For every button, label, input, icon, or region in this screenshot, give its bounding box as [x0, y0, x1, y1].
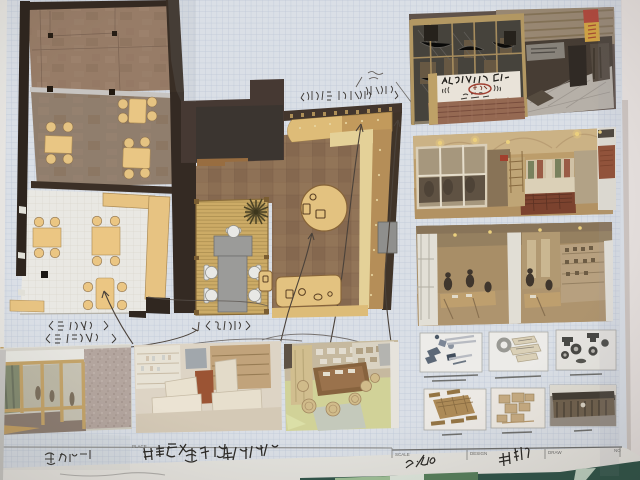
svg-text:DESIGN: DESIGN — [470, 451, 487, 456]
svg-text:SCALE: SCALE — [395, 452, 410, 457]
svg-text:DRAW: DRAW — [548, 450, 562, 455]
